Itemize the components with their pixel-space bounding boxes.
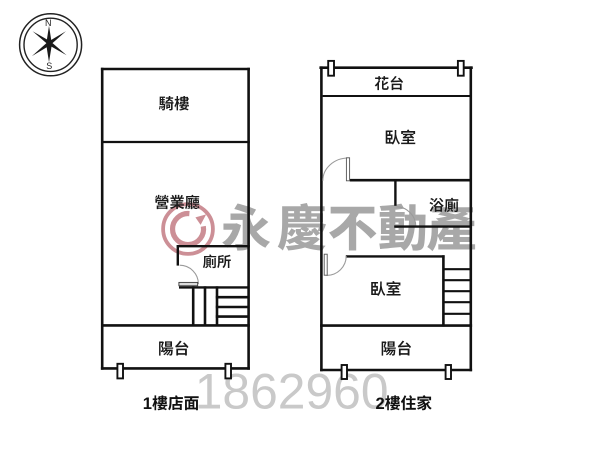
svg-text:2: 2 bbox=[376, 394, 385, 413]
svg-text:S: S bbox=[46, 61, 52, 71]
svg-text:1: 1 bbox=[143, 394, 152, 413]
svg-text:N: N bbox=[45, 18, 52, 28]
svg-text:1862960: 1862960 bbox=[195, 363, 389, 419]
